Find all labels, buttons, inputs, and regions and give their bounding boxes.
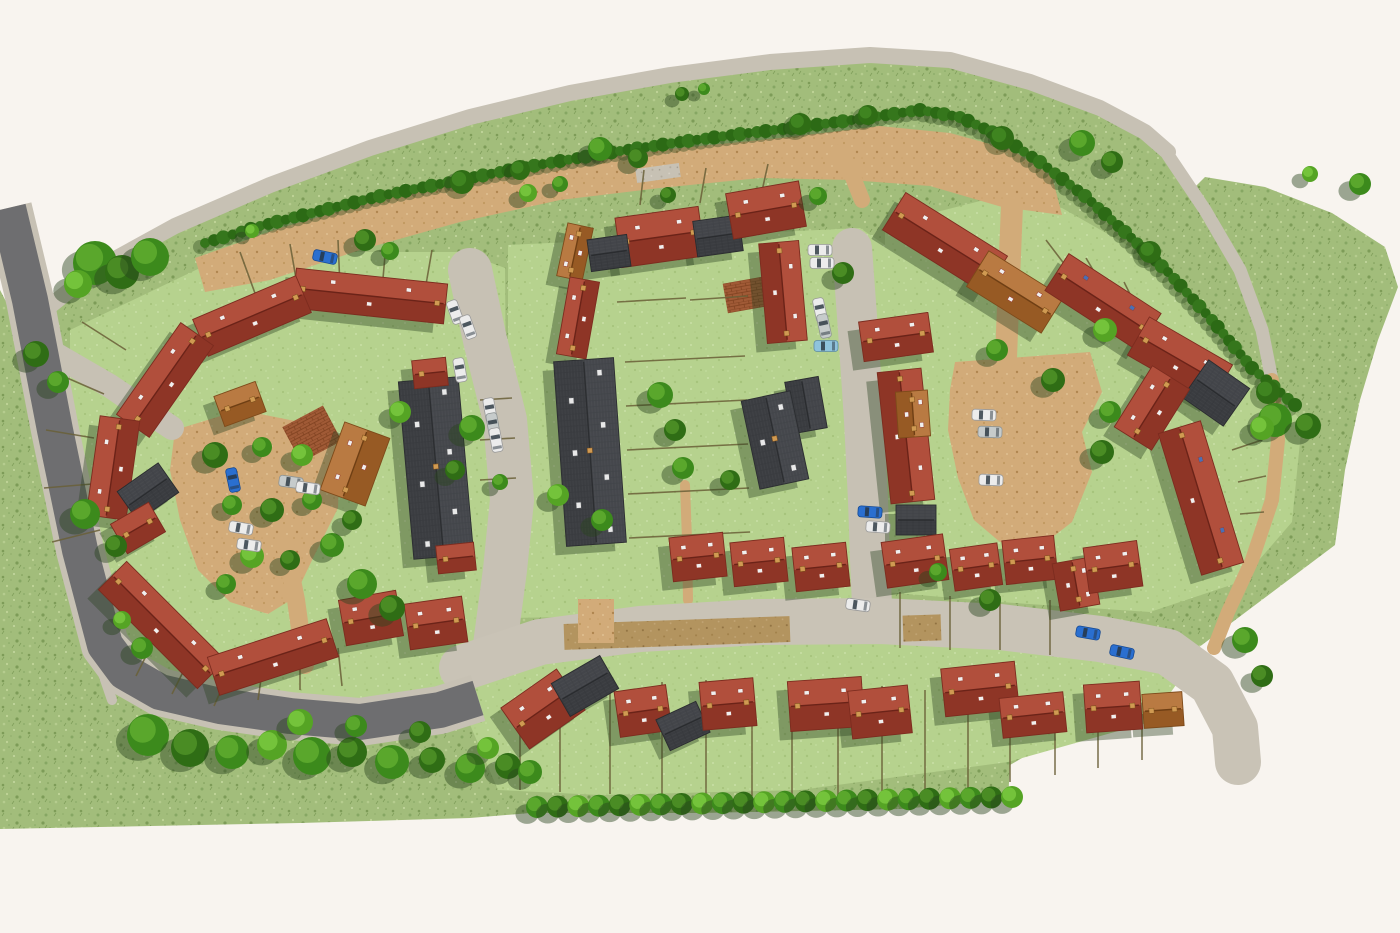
dormer-window [572, 450, 577, 456]
rooflight [696, 564, 701, 569]
parked-car-blue [858, 506, 883, 519]
tree-canopy-highlight [548, 485, 562, 499]
hedge-tree-highlight [452, 172, 466, 186]
chimney [897, 376, 902, 381]
building-brown-roof [1142, 692, 1184, 729]
car-rear-window [990, 411, 993, 420]
rooflight [708, 542, 713, 547]
chimney [1179, 432, 1185, 438]
rooflight [779, 193, 785, 198]
rooflight [914, 568, 920, 573]
tree-canopy-highlight [253, 438, 265, 450]
chimney [919, 330, 925, 336]
tree-canopy-highlight [72, 501, 91, 520]
rooflight [831, 552, 836, 557]
rooflight [918, 399, 922, 404]
car-windshield [985, 427, 989, 436]
tree-canopy-highlight [833, 263, 847, 277]
rooflight [824, 712, 829, 716]
building-red-roof [730, 537, 788, 586]
rooflight [642, 718, 648, 723]
tree-canopy-highlight [721, 471, 733, 483]
hedge-tree-highlight [1258, 382, 1272, 396]
chimney [116, 424, 122, 430]
tree-canopy-highlight [520, 762, 535, 777]
chimney [580, 285, 586, 291]
rooflight [572, 295, 577, 301]
tree-canopy-highlight [1234, 629, 1250, 645]
rooflight [435, 630, 441, 635]
rooflight [119, 466, 124, 472]
building-slateplain-roof [587, 234, 631, 271]
building-red-roof [436, 542, 477, 574]
rooflight [659, 245, 665, 250]
rooflight [626, 699, 632, 704]
building-red-roof [1083, 681, 1142, 733]
parked-car-white [972, 409, 996, 421]
chimney [443, 556, 448, 561]
chimney [949, 689, 954, 694]
tree-canopy-highlight [381, 597, 397, 613]
rooflight [895, 549, 901, 554]
chimney [1130, 703, 1135, 708]
car-windshield [979, 410, 983, 419]
rooflight [878, 719, 883, 724]
dormer-window [597, 369, 602, 375]
chimney [837, 562, 842, 567]
dormer-window [414, 421, 420, 427]
tree-canopy-highlight [1071, 132, 1087, 148]
tree-canopy-highlight [1102, 152, 1116, 166]
tree-canopy-highlight [76, 244, 103, 271]
car-rear-window [997, 476, 1000, 485]
tree-canopy-highlight [281, 551, 293, 563]
parked-car-white [866, 521, 891, 534]
rooflight [563, 261, 568, 267]
chimney [911, 426, 916, 431]
rooflight [331, 280, 336, 285]
chimney [658, 706, 664, 712]
chimney [989, 562, 995, 568]
building-red-roof [999, 692, 1067, 738]
tree-canopy-highlight [355, 230, 369, 244]
building-red-roof [669, 532, 727, 581]
rooflight [569, 235, 574, 241]
chimney [413, 623, 419, 629]
tree-canopy-highlight [346, 716, 360, 730]
chimney [1045, 555, 1050, 560]
car-windshield [817, 259, 821, 268]
chimney [568, 267, 574, 273]
chimney [1054, 710, 1059, 715]
rooflight [676, 219, 682, 224]
rooflight [841, 688, 846, 692]
tree-canopy-highlight [810, 188, 821, 199]
rooflight [1081, 568, 1086, 574]
chimney [419, 371, 424, 376]
car-rear-window [826, 246, 829, 255]
rooflight [769, 547, 774, 552]
rooflight [635, 225, 641, 230]
chimney [570, 345, 576, 351]
chimney [707, 703, 712, 708]
car-rear-window [996, 428, 999, 437]
rooflight [994, 673, 999, 678]
rooflight [974, 573, 980, 578]
rooflight [578, 250, 583, 256]
tree-canopy-highlight [410, 722, 424, 736]
rooflight [904, 412, 908, 417]
tree-canopy-highlight [629, 149, 641, 161]
tree-canopy-highlight [553, 177, 563, 187]
rooflight [1013, 548, 1018, 553]
rooflight [406, 288, 411, 293]
tree-canopy-highlight [1043, 370, 1058, 385]
hedgerow-bush [1288, 398, 1302, 412]
tree-canopy-highlight [322, 535, 337, 550]
chimney [1070, 566, 1076, 572]
tree-canopy-highlight [930, 564, 941, 575]
building-slateplain-roof [896, 505, 936, 535]
site-plan-render [0, 0, 1400, 933]
rooflight [711, 691, 716, 695]
tree-canopy-highlight [1303, 167, 1313, 177]
dormer-window [447, 449, 453, 455]
building-red-roof [759, 240, 808, 343]
tree-canopy-highlight [130, 717, 156, 743]
hedge-tree-highlight [860, 107, 872, 119]
tree-canopy-highlight [590, 139, 605, 154]
rooflight [446, 607, 452, 612]
rooflight [582, 316, 587, 322]
rooflight [819, 574, 824, 579]
tree-canopy-highlight [48, 372, 62, 386]
tree-canopy-highlight [421, 749, 437, 765]
paving-strip [578, 599, 614, 643]
hedge-tree-highlight [512, 162, 524, 174]
tree-canopy-highlight [446, 461, 458, 473]
tree-canopy-highlight [592, 510, 606, 524]
rooflight [366, 302, 371, 307]
rooflight [1122, 551, 1128, 556]
chimney [784, 331, 789, 336]
chimney [909, 397, 914, 402]
chimney [958, 566, 964, 572]
building-red-roof [792, 542, 850, 591]
tree-canopy-highlight [343, 511, 355, 523]
chimney [104, 506, 110, 512]
tree-canopy-highlight [377, 747, 398, 768]
chimney [1217, 558, 1223, 564]
rooflight [97, 489, 102, 495]
car-windshield [815, 246, 819, 255]
chimney [795, 703, 800, 708]
car-windshield [821, 342, 825, 351]
rooflight [738, 689, 743, 693]
tree-canopy-highlight [173, 731, 197, 755]
rooflight [918, 465, 923, 470]
chimney [1091, 706, 1096, 711]
rooflight [1031, 721, 1036, 726]
tree-canopy-highlight [980, 590, 994, 604]
tree-canopy-highlight [649, 384, 665, 400]
chimney [348, 619, 354, 625]
chimney [909, 490, 914, 495]
building-red-roof [848, 685, 913, 739]
chimney [623, 711, 629, 717]
rooflight [958, 677, 963, 682]
tree-canopy-highlight [1297, 415, 1313, 431]
building-red-roof [949, 543, 1002, 591]
chimney [772, 436, 778, 442]
chimney [800, 566, 805, 571]
chimney [735, 212, 741, 218]
tree-shadow [688, 91, 701, 102]
dormer-window [778, 404, 784, 411]
chimney [1172, 707, 1177, 712]
rooflight [104, 439, 109, 445]
parked-car-white [808, 245, 832, 256]
rooflight [804, 555, 809, 560]
tree-canopy-highlight [106, 536, 120, 550]
building-brown-roof [895, 390, 930, 438]
tree-canopy-highlight [25, 343, 41, 359]
rooflight [804, 691, 809, 695]
tree-canopy-highlight [661, 188, 671, 198]
gravel-path [852, 248, 872, 605]
parked-car-lightblue [814, 341, 838, 352]
rooflight [743, 199, 749, 204]
tree-canopy-highlight [295, 739, 319, 763]
car-rear-window [828, 259, 831, 268]
tree-canopy-highlight [673, 458, 687, 472]
rooflight [793, 313, 797, 318]
chimney [1149, 708, 1154, 713]
parked-car-white [810, 258, 834, 269]
chimney [867, 338, 873, 344]
rooflight [894, 343, 900, 348]
tree-canopy-highlight [133, 240, 157, 264]
building-red-roof [699, 678, 757, 731]
car-rear-window [884, 523, 888, 532]
tree-canopy-highlight [520, 185, 531, 196]
rooflight [757, 569, 762, 574]
rooflight [352, 607, 358, 612]
chimney [899, 707, 904, 712]
rooflight [417, 611, 423, 616]
tree-canopy-highlight [262, 500, 277, 515]
chimney [434, 300, 439, 305]
chimney [433, 464, 438, 469]
dormer-window [442, 389, 448, 395]
tree-canopy-highlight [1252, 666, 1266, 680]
rooflight [978, 696, 983, 701]
tree-canopy-highlight [1252, 418, 1267, 433]
chimney [934, 555, 940, 561]
tree-canopy-highlight [478, 738, 492, 752]
chimney [890, 561, 896, 567]
tree-canopy-highlight [493, 475, 503, 485]
masterplan-canvas [0, 0, 1400, 933]
building-red-roof [1002, 535, 1058, 584]
tree-canopy-highlight [114, 612, 125, 623]
rooflight [370, 625, 376, 630]
chimney [576, 231, 582, 237]
chimney [714, 552, 719, 557]
dormer-window [791, 464, 797, 471]
chimney [1076, 596, 1082, 602]
chimney [1010, 559, 1015, 564]
tree-canopy-highlight [223, 496, 235, 508]
tree-canopy-highlight [382, 243, 393, 254]
tree-canopy-highlight [665, 420, 679, 434]
rooflight [726, 711, 731, 715]
rooflight [891, 696, 896, 701]
tree-canopy-highlight [1002, 787, 1016, 801]
tree-canopy-highlight [349, 571, 368, 590]
dormer-window [576, 502, 581, 508]
rooflight [1123, 692, 1128, 696]
chimney [453, 617, 459, 623]
chimney [777, 248, 782, 253]
tree-canopy-highlight [497, 755, 513, 771]
car-windshield [873, 522, 878, 531]
rooflight [742, 550, 747, 555]
car-windshield [986, 475, 990, 484]
paving-strip [903, 614, 942, 641]
chimney [856, 711, 861, 716]
rooflight [1112, 574, 1118, 579]
rooflight [773, 290, 777, 295]
rooflight [909, 322, 915, 327]
chimney [1128, 562, 1134, 568]
rooflight [1066, 583, 1071, 589]
rooflight [960, 556, 966, 561]
chimney [791, 202, 797, 208]
car-rear-window [832, 342, 835, 351]
tree-canopy-highlight [246, 225, 255, 234]
chimney [744, 700, 749, 705]
tree-canopy-highlight [461, 417, 477, 433]
parked-car-white [979, 474, 1003, 486]
dormer-window [604, 474, 609, 480]
rooflight [984, 553, 990, 558]
tree-canopy-highlight [699, 84, 706, 91]
tree-canopy-highlight [390, 402, 404, 416]
rooflight [1013, 704, 1018, 709]
dormer-window [569, 398, 574, 404]
building-red-roof [412, 357, 449, 388]
dormer-window [760, 439, 766, 446]
tree-canopy-highlight [217, 575, 229, 587]
building-red-roof [1083, 540, 1143, 593]
rooflight [1096, 694, 1101, 698]
tree-canopy-highlight [1092, 442, 1107, 457]
rooflight [1039, 545, 1044, 550]
rooflight [861, 699, 866, 704]
tree-canopy-highlight [1350, 174, 1364, 188]
building-red-roof [404, 596, 468, 650]
tree-canopy-highlight [204, 444, 220, 460]
rooflight [1045, 701, 1050, 706]
dormer-window [452, 508, 458, 514]
rooflight [765, 217, 771, 222]
rooflight [1028, 567, 1033, 572]
rooflight [1095, 555, 1101, 560]
rooflight [1111, 714, 1116, 718]
tree-canopy-highlight [66, 272, 83, 289]
chimney [1006, 683, 1011, 688]
hedge-tree-highlight [791, 115, 804, 128]
parked-car-silver [978, 426, 1002, 438]
tree-canopy-highlight [1095, 320, 1110, 335]
rooflight [652, 695, 658, 700]
tree-canopy-highlight [217, 737, 238, 758]
chimney [1007, 715, 1012, 720]
tree-canopy-highlight [289, 711, 305, 727]
rooflight [789, 264, 793, 269]
dormer-window [420, 481, 426, 487]
tree-canopy-highlight [1100, 402, 1114, 416]
tree-canopy-highlight [292, 445, 306, 459]
rooflight [875, 327, 881, 332]
hedge-tree-highlight [992, 128, 1006, 142]
tree-canopy-highlight [132, 638, 146, 652]
dormer-window [425, 541, 431, 547]
chimney [587, 448, 592, 453]
tree-canopy-highlight [259, 732, 278, 751]
chimney [738, 561, 743, 566]
chimney [775, 557, 780, 562]
dormer-window [600, 422, 605, 428]
rooflight [565, 333, 570, 339]
tree-canopy-highlight [676, 88, 685, 97]
chimney [1092, 567, 1098, 573]
chimney [677, 556, 682, 561]
car-windshield [865, 507, 870, 516]
tree-canopy-highlight [987, 340, 1001, 354]
car-rear-window [876, 508, 880, 517]
hedge-tree-highlight [1141, 243, 1154, 256]
rooflight [926, 545, 932, 550]
rooflight [681, 545, 686, 550]
rooflight [920, 422, 924, 427]
